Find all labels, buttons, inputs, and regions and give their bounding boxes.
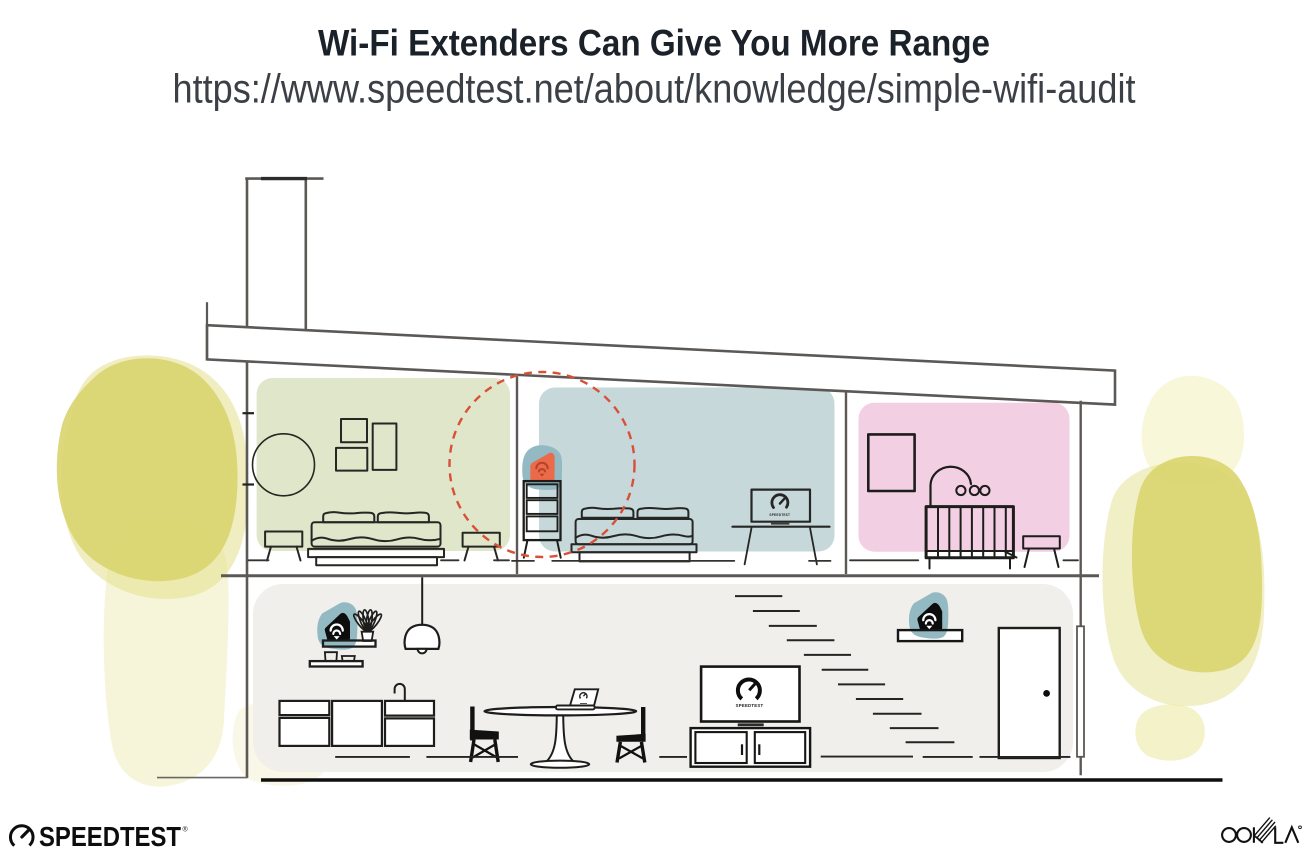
svg-text:SPEEDTEST: SPEEDTEST bbox=[736, 703, 764, 708]
svg-text:SPEEDTEST: SPEEDTEST bbox=[39, 821, 181, 852]
svg-text:Wi-Fi Extenders Can Give You M: Wi-Fi Extenders Can Give You More Range bbox=[318, 22, 990, 64]
svg-text:SPEEDTEST: SPEEDTEST bbox=[769, 513, 790, 517]
svg-text:®: ® bbox=[183, 826, 189, 834]
svg-text:https://www.speedtest.net/abou: https://www.speedtest.net/about/knowledg… bbox=[173, 66, 1137, 112]
